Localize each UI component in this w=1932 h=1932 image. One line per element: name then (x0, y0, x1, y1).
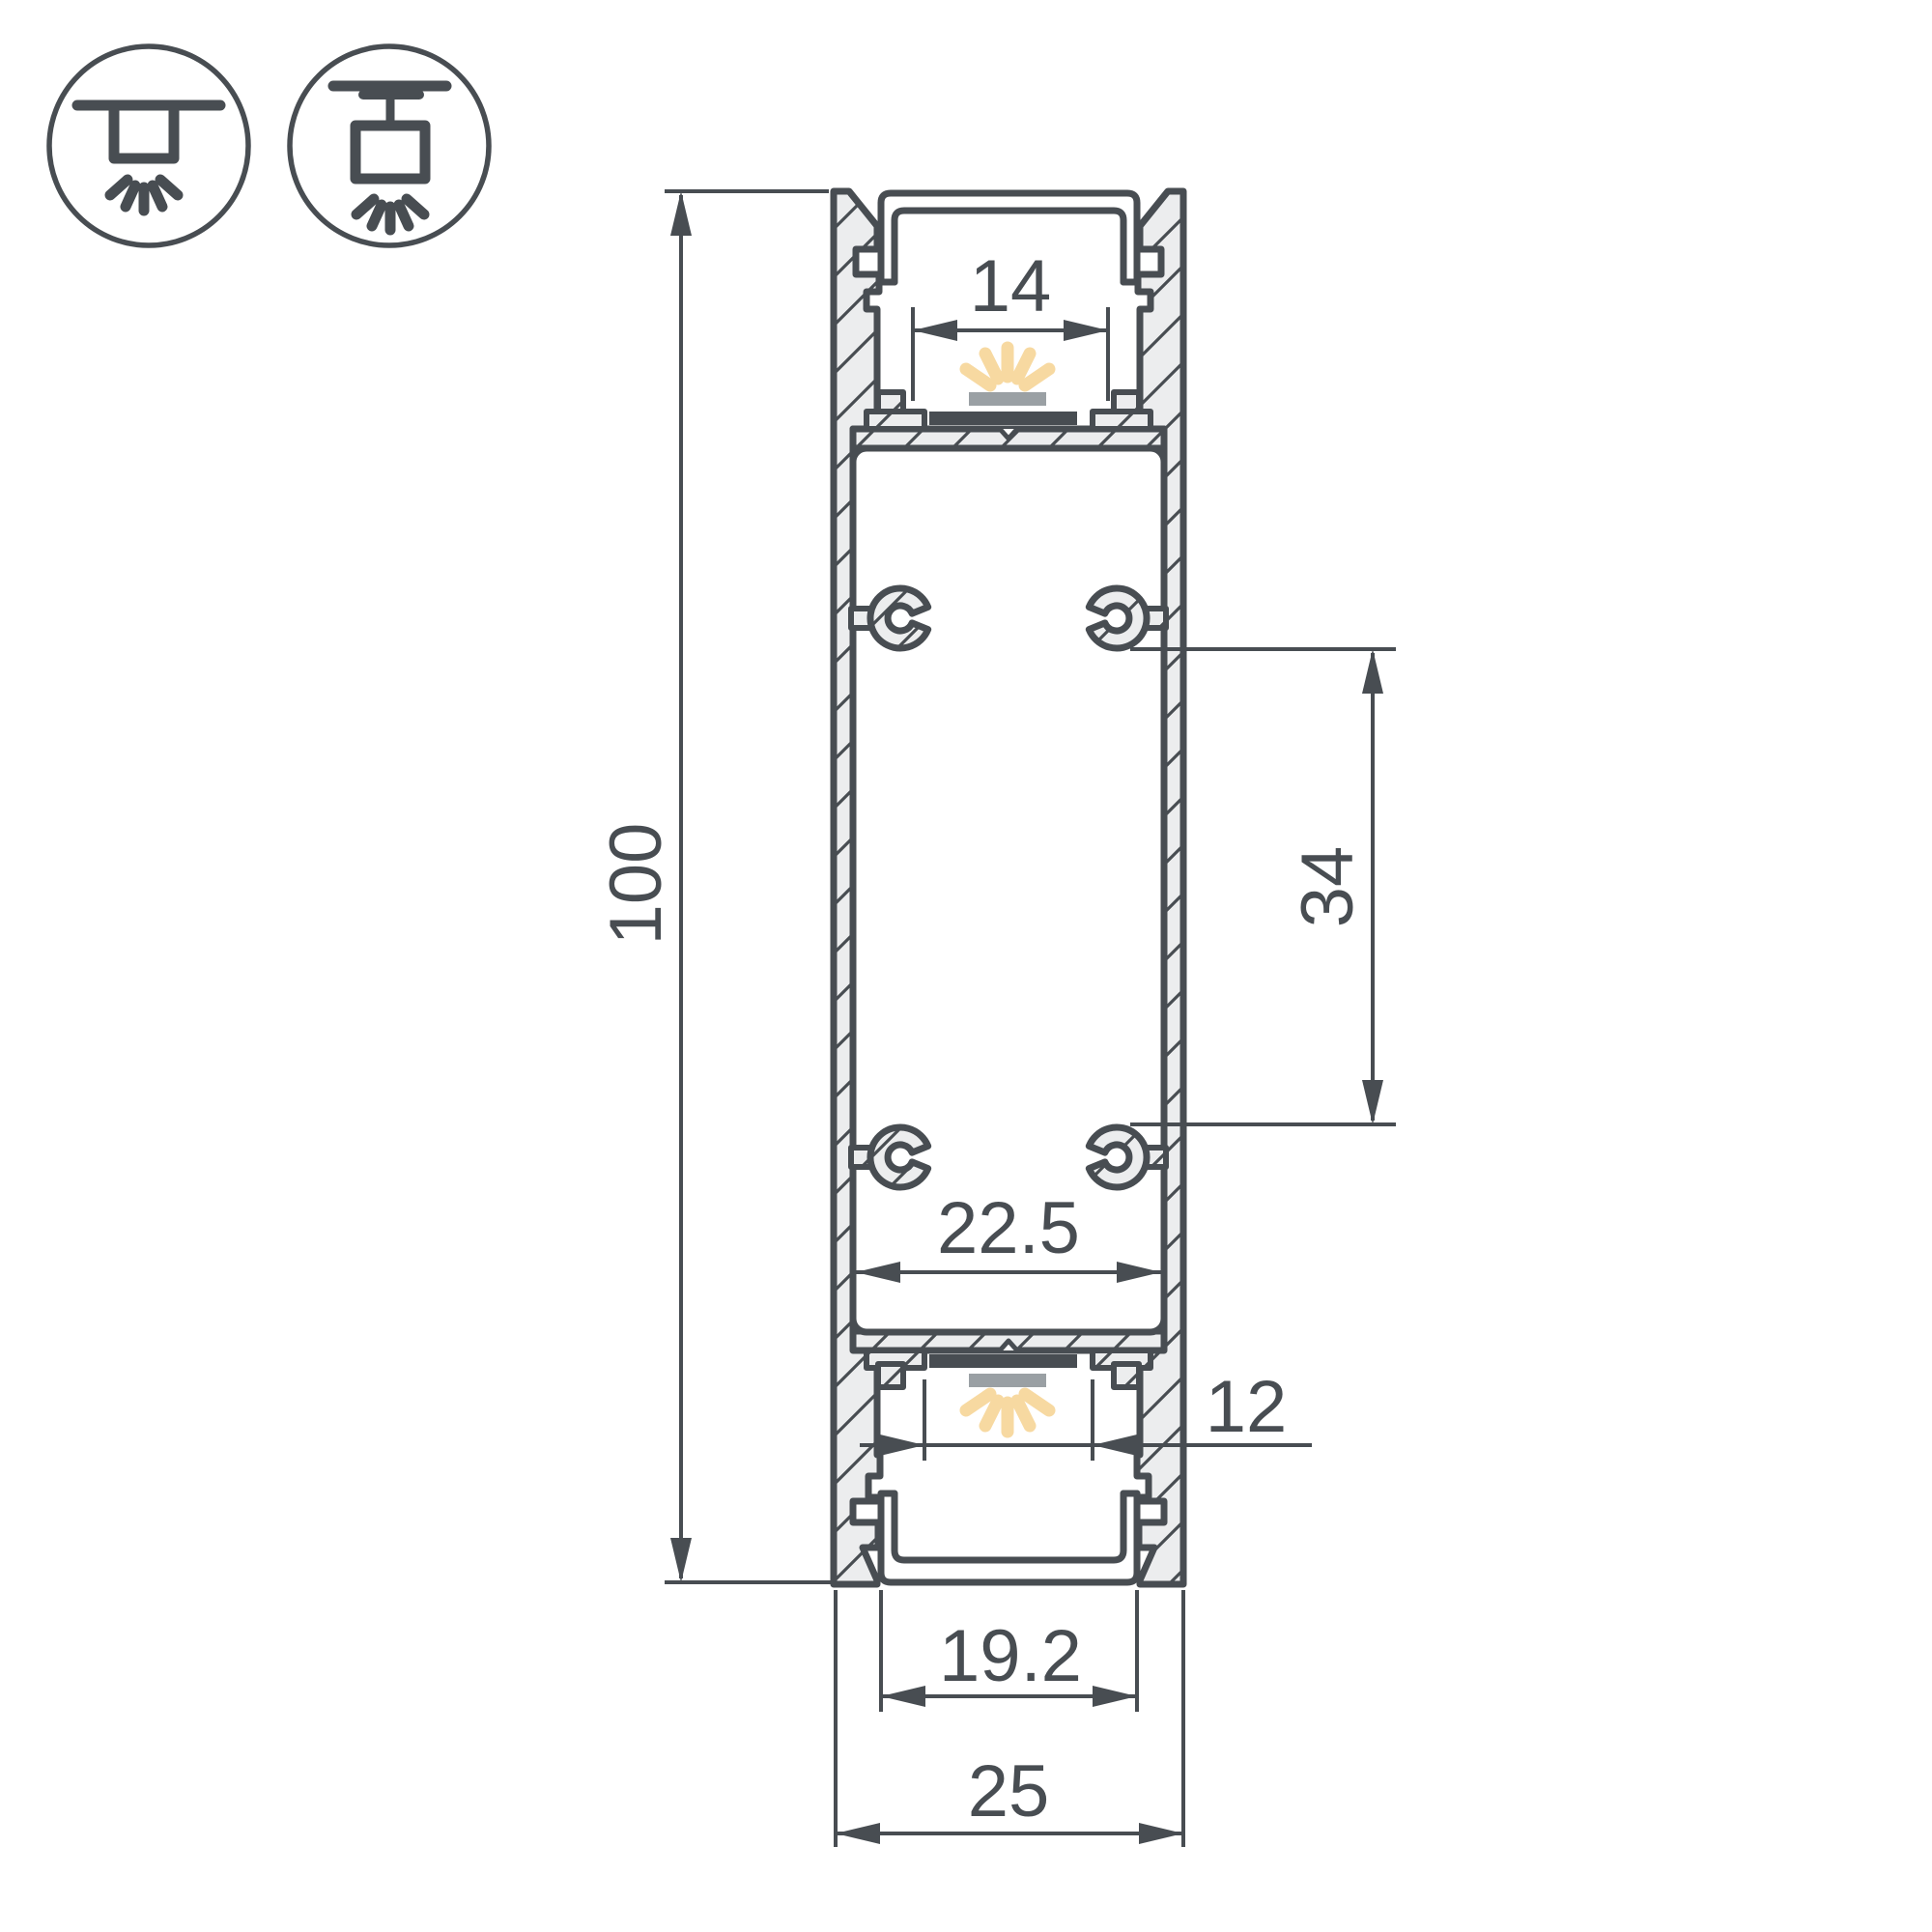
dim-label-boss-spacing: 34 (1287, 846, 1369, 928)
dim-label-bottom-opening: 19.2 (939, 1615, 1082, 1697)
dim-label-overall-height: 100 (595, 823, 677, 946)
led-diffused-light (969, 1374, 1046, 1387)
led-pcb (929, 412, 1077, 425)
led-diffused-light (969, 392, 1046, 406)
dim-label-bottom-led-window: 12 (1206, 1366, 1288, 1448)
led-profile-technical-drawing: 100 14 34 22.5 (0, 0, 1932, 1932)
dim-label-top-opening: 14 (970, 245, 1052, 327)
led-pcb (929, 1354, 1077, 1368)
dim-label-overall-width: 25 (968, 1750, 1050, 1833)
dim-label-inner-width: 22.5 (937, 1187, 1080, 1269)
profile-cross-section (834, 191, 1183, 1584)
